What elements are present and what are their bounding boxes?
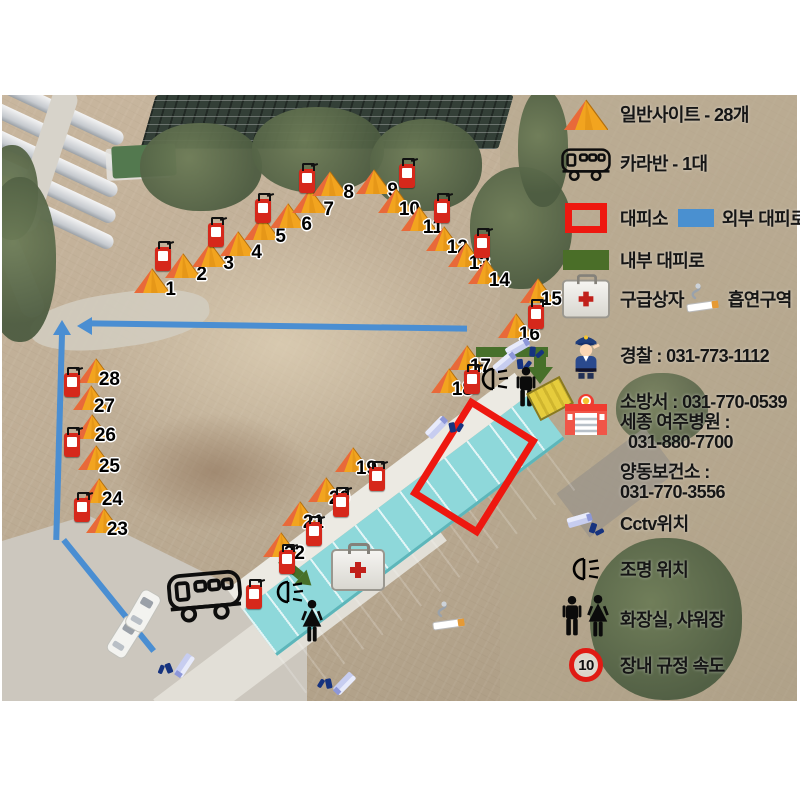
cctv-icon bbox=[419, 410, 455, 445]
fire-extinguisher-icon bbox=[333, 493, 349, 517]
tent-site-25: 25 bbox=[78, 444, 114, 470]
site-number: 7 bbox=[323, 200, 334, 219]
marker-layer: 1234567891011121314151617181920212223242… bbox=[0, 0, 800, 798]
fire-extinguisher-icon bbox=[208, 223, 224, 247]
site-number: 26 bbox=[95, 426, 116, 445]
tent-site-23: 23 bbox=[86, 507, 122, 533]
fire-extinguisher-icon bbox=[64, 433, 80, 457]
campground-safety-map: 1234567891011121314151617181920212223242… bbox=[0, 0, 800, 798]
fire-extinguisher-icon bbox=[399, 164, 415, 188]
fire-extinguisher-icon bbox=[528, 305, 544, 329]
cctv-icon bbox=[326, 667, 362, 702]
site-number: 23 bbox=[107, 520, 128, 539]
site-number: 5 bbox=[275, 227, 286, 246]
site-number: 2 bbox=[196, 265, 207, 284]
tent-site-19: 19 bbox=[335, 446, 371, 472]
fire-extinguisher-icon bbox=[474, 234, 490, 258]
site-number: 3 bbox=[223, 254, 234, 273]
first-aid-kit-icon bbox=[331, 549, 385, 591]
site-number: 24 bbox=[102, 490, 123, 509]
fire-extinguisher-icon bbox=[246, 585, 262, 609]
site-number: 8 bbox=[343, 183, 354, 202]
women-restroom-icon bbox=[298, 599, 326, 648]
site-number: 4 bbox=[251, 243, 262, 262]
parked-car bbox=[123, 587, 163, 634]
tent-site-14: 14 bbox=[468, 258, 504, 284]
fire-extinguisher-icon bbox=[464, 370, 480, 394]
site-number: 6 bbox=[301, 215, 312, 234]
fire-extinguisher-icon bbox=[64, 373, 80, 397]
site-number: 14 bbox=[489, 271, 510, 290]
tent-site-8: 8 bbox=[312, 170, 348, 196]
fire-extinguisher-icon bbox=[306, 522, 322, 546]
fire-extinguisher-icon bbox=[434, 199, 450, 223]
site-number: 27 bbox=[94, 397, 115, 416]
fire-extinguisher-icon bbox=[255, 199, 271, 223]
cctv-icon bbox=[166, 648, 203, 684]
light-icon bbox=[481, 367, 509, 396]
fire-extinguisher-icon bbox=[369, 467, 385, 491]
smoking-area-icon bbox=[431, 601, 473, 638]
caravan-icon bbox=[163, 562, 246, 632]
site-number: 1 bbox=[165, 280, 176, 299]
tent-site-28: 28 bbox=[78, 357, 114, 383]
fire-extinguisher-icon bbox=[299, 169, 315, 193]
fire-extinguisher-icon bbox=[279, 550, 295, 574]
site-number: 28 bbox=[99, 370, 120, 389]
fire-extinguisher-icon bbox=[74, 498, 90, 522]
fire-extinguisher-icon bbox=[155, 247, 171, 271]
site-number: 25 bbox=[99, 457, 120, 476]
tent-site-18: 18 bbox=[431, 367, 467, 393]
